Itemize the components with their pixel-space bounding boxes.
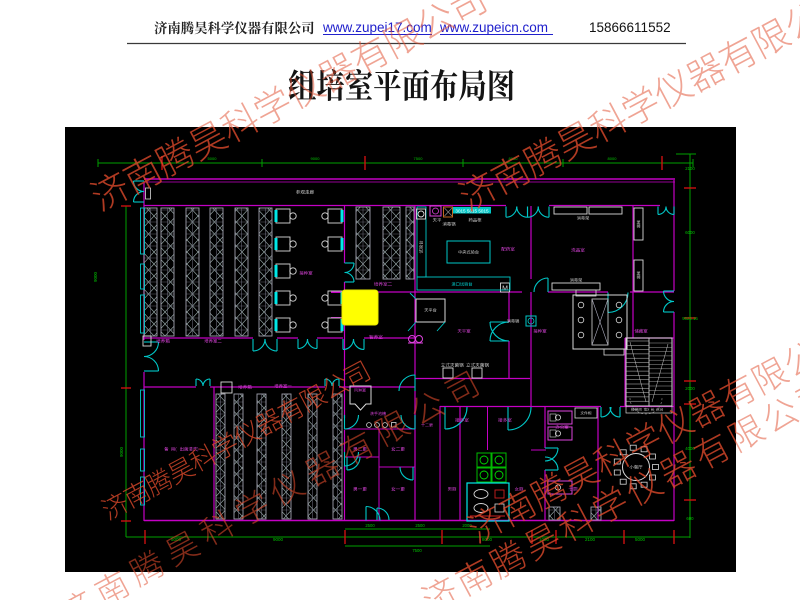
svg-text:www.zupei17.com: www.zupei17.com — [322, 20, 432, 35]
svg-text:5000: 5000 — [635, 537, 646, 542]
svg-text:9024.16: 9024.16 — [682, 316, 698, 321]
svg-text:6000: 6000 — [685, 230, 695, 235]
svg-text:2500: 2500 — [415, 523, 425, 528]
svg-text:www.zupeicn.com: www.zupeicn.com — [439, 20, 548, 35]
svg-text:9000: 9000 — [119, 446, 124, 457]
svg-text:2100: 2100 — [585, 537, 596, 542]
svg-text:2000: 2000 — [462, 523, 472, 528]
svg-text:9000: 9000 — [93, 271, 98, 282]
svg-text:2100: 2100 — [685, 166, 695, 171]
svg-text:7500: 7500 — [412, 548, 422, 553]
svg-text:7500: 7500 — [414, 156, 424, 161]
svg-text:5000: 5000 — [208, 156, 218, 161]
svg-text:15866611552: 15866611552 — [589, 20, 671, 35]
svg-text:8000: 8000 — [608, 156, 618, 161]
svg-text:9000: 9000 — [311, 156, 321, 161]
svg-text:9000: 9000 — [273, 537, 284, 542]
svg-text:2500: 2500 — [365, 523, 375, 528]
svg-text:M: M — [502, 286, 508, 293]
svg-text:600: 600 — [686, 516, 694, 521]
svg-text:2000: 2000 — [685, 386, 695, 391]
